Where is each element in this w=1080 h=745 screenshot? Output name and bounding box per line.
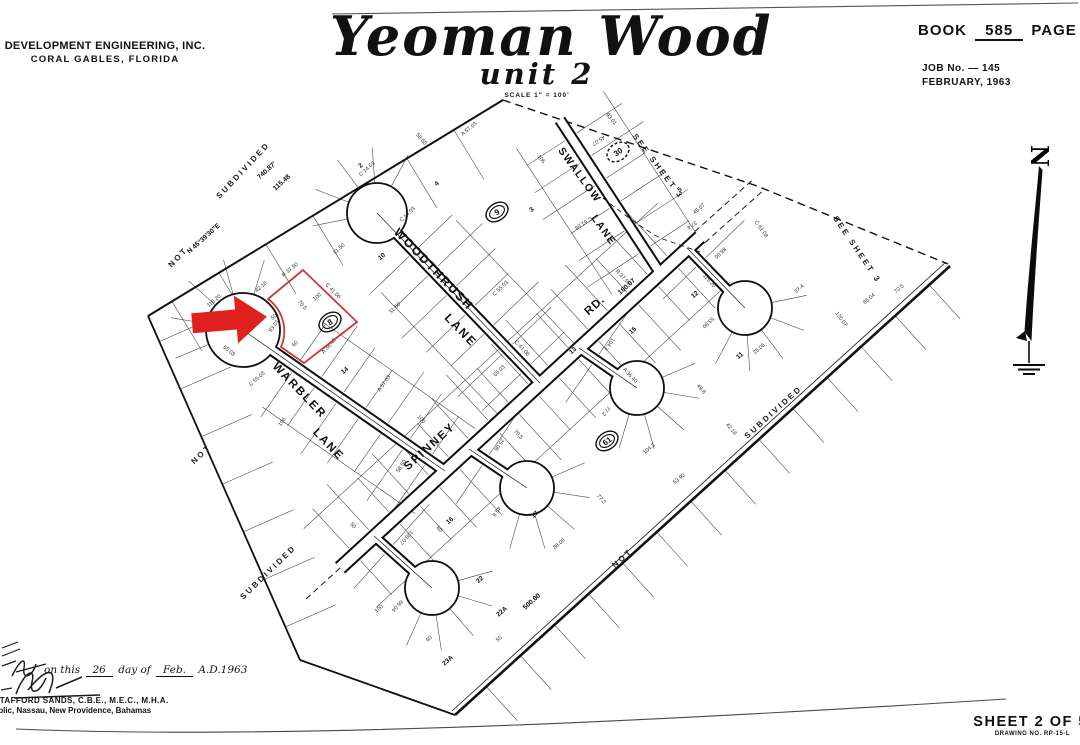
area-label: SUBDIVIDED xyxy=(743,384,804,440)
book-label: BOOK xyxy=(918,22,967,39)
dimension-text: 58.50 xyxy=(414,132,427,146)
dimension-text: 65.03 xyxy=(493,364,507,378)
job-block: JOB No. — 145 FEBRUARY, 1963 xyxy=(922,62,1011,90)
lot-number: 10 xyxy=(377,252,387,262)
dimension-text: 70.5 xyxy=(893,283,905,294)
dimension-text: 42.18 xyxy=(254,281,268,294)
dimension-text: 42.18 xyxy=(724,422,737,436)
dimension-text: 70.5 xyxy=(512,429,524,441)
dimension-text: 45.07 xyxy=(692,203,706,216)
dimension-text: 100 xyxy=(416,414,427,425)
plat-map-holder: 506010070.5C 41.06A 36.40R 37.50115.2065… xyxy=(0,0,1080,745)
dimension-text: A 57.03 xyxy=(377,374,393,393)
cert-of: day of xyxy=(118,664,150,676)
dimension-text: 66.04 xyxy=(390,598,404,612)
lot-number: 15 xyxy=(628,326,638,336)
boundary-dimension-label: 740.87' xyxy=(256,161,278,181)
book-value: 585 xyxy=(975,22,1023,41)
dimension-text: 66.04 xyxy=(862,293,876,306)
street-label: LANE xyxy=(310,427,346,464)
dimension-text: 93.01 xyxy=(604,112,617,126)
firm-name: DEVELOPMENT ENGINEERING, INC. xyxy=(2,40,208,54)
compass-blade xyxy=(1025,166,1043,341)
north-arrow-svg: N xyxy=(998,126,1070,380)
dimension-text: 45.07 xyxy=(591,134,606,147)
dimension-text: A 36.40 xyxy=(321,337,338,355)
dimension-text: C 55.03 xyxy=(492,280,510,298)
lot-number: 3 xyxy=(528,206,536,214)
scan-artifacts xyxy=(1,3,1078,732)
notary-address: Public, Nassau, New Providence, Bahamas xyxy=(0,706,151,715)
job-date: FEBRUARY, 1963 xyxy=(922,76,1011,90)
boundary-dimension-label: N 45°39'30"E xyxy=(186,221,223,255)
dimension-text: 49.8 xyxy=(490,505,501,517)
lot-number: 11 xyxy=(735,351,745,361)
street-label: WOODTHRUSH xyxy=(391,225,477,313)
dimension-text: 53.90 xyxy=(701,315,715,329)
boundary-dimension-label: 115.48 xyxy=(272,173,292,192)
boundary-dimension-label: 500.00 xyxy=(522,592,542,611)
dimension-text: 77.2 xyxy=(595,493,606,505)
lot-number: 14 xyxy=(340,366,350,376)
firm-city: CORAL GABLES, FLORIDA xyxy=(2,54,208,66)
dimension-text: 100 xyxy=(374,604,385,615)
dimension-text: 104.3 xyxy=(642,443,656,456)
north-label: N xyxy=(1025,145,1054,167)
dimension-text: C 61.08 xyxy=(753,220,769,239)
cert-day: 26 xyxy=(86,664,113,677)
dimension-text: 49.8 xyxy=(695,383,706,395)
firm-block: DEVELOPMENT ENGINEERING, INC. CORAL GABL… xyxy=(2,40,208,66)
street-label: LANE xyxy=(588,213,618,248)
dimension-text: 50 xyxy=(348,522,357,531)
dimension-text: 100 xyxy=(312,292,323,303)
highlighted-lot-outline xyxy=(268,270,357,363)
plat-sheet: 506010070.5C 41.06A 36.40R 37.50115.2065… xyxy=(0,0,1080,745)
dimension-text: 31.50 xyxy=(388,302,402,316)
dimension-text: 53.90 xyxy=(672,473,686,486)
lot-number: 22A xyxy=(495,605,509,618)
area-label: SEE SHEET 3 xyxy=(831,214,883,285)
street-label: RD. xyxy=(583,294,608,318)
dimension-text: 104.3 xyxy=(602,336,615,351)
dimension-text: 77.2 xyxy=(600,404,611,416)
dimension-text: 31.50 xyxy=(332,242,346,256)
dimension-text: 60 xyxy=(425,635,434,644)
drawing-number: DRAWING NO. RP-15-L xyxy=(973,731,1070,737)
lot-number: 22 xyxy=(475,575,485,585)
page-label: PAGE xyxy=(1031,22,1076,39)
lot-number: 12 xyxy=(690,290,700,300)
sheet-number-block: SHEET 2 OF 5 DRAWING NO. RP-15-L xyxy=(973,714,1080,737)
job-number: JOB No. — 145 xyxy=(922,62,1011,76)
lot-number: 23A xyxy=(441,654,455,667)
sheet-number: SHEET 2 OF 5 xyxy=(973,714,1080,730)
cert-prefix: on this xyxy=(44,664,80,676)
dimension-text: 106 xyxy=(536,154,547,165)
subdivision-boundary xyxy=(148,100,950,715)
block-number: 61 xyxy=(601,435,614,448)
dimension-text: 37.4 xyxy=(793,283,805,294)
dimension-text: 50 xyxy=(495,635,504,644)
lot-number: 4 xyxy=(433,180,441,188)
dimension-text: 120.07 xyxy=(398,529,414,546)
dimension-text: 25.06 xyxy=(492,437,505,452)
dimension-text: 88.06 xyxy=(552,538,566,551)
north-arrow-icon: N xyxy=(998,126,1070,380)
dimension-text: 88.06 xyxy=(713,246,727,260)
cert-year: A.D.1963 xyxy=(198,664,247,676)
area-label: SUBDIVIDED xyxy=(238,543,298,601)
dimension-text: 60 xyxy=(291,340,300,349)
plat-map: 506010070.5C 41.06A 36.40R 37.50115.2065… xyxy=(0,0,1080,745)
dimension-text: 70.5 xyxy=(296,299,307,311)
area-label: NOT xyxy=(610,547,634,570)
cert-month: Feb. xyxy=(156,664,193,677)
book-page-block: BOOK 585 PAGE 15 xyxy=(918,22,1080,41)
block-number-badge: 61 xyxy=(592,427,621,455)
notary-name: STAFFORD SANDS, C.B.E., M.E.C., M.H.A. xyxy=(0,696,169,705)
dimension-text: 120.07 xyxy=(834,311,849,328)
block-number: 30 xyxy=(612,146,625,159)
block-number-badge: 9 xyxy=(482,198,511,226)
dimension-text: C 55.03 xyxy=(248,371,266,388)
scale-note: SCALE 1" = 100' xyxy=(330,92,744,99)
dimension-text: 37.4 xyxy=(685,219,697,230)
dimension-text: C 61.08 xyxy=(573,215,592,231)
lot-number: 16 xyxy=(445,516,455,526)
dimension-text: 60 xyxy=(435,525,444,534)
title-block: Yeoman Wood unit 2 SCALE 1" = 100' xyxy=(330,8,744,99)
block-number-badge: 8 xyxy=(315,308,344,336)
dimension-text: 25.06 xyxy=(752,343,766,356)
certification-line: on this 26 day of Feb. A.D.1963 xyxy=(44,664,247,677)
